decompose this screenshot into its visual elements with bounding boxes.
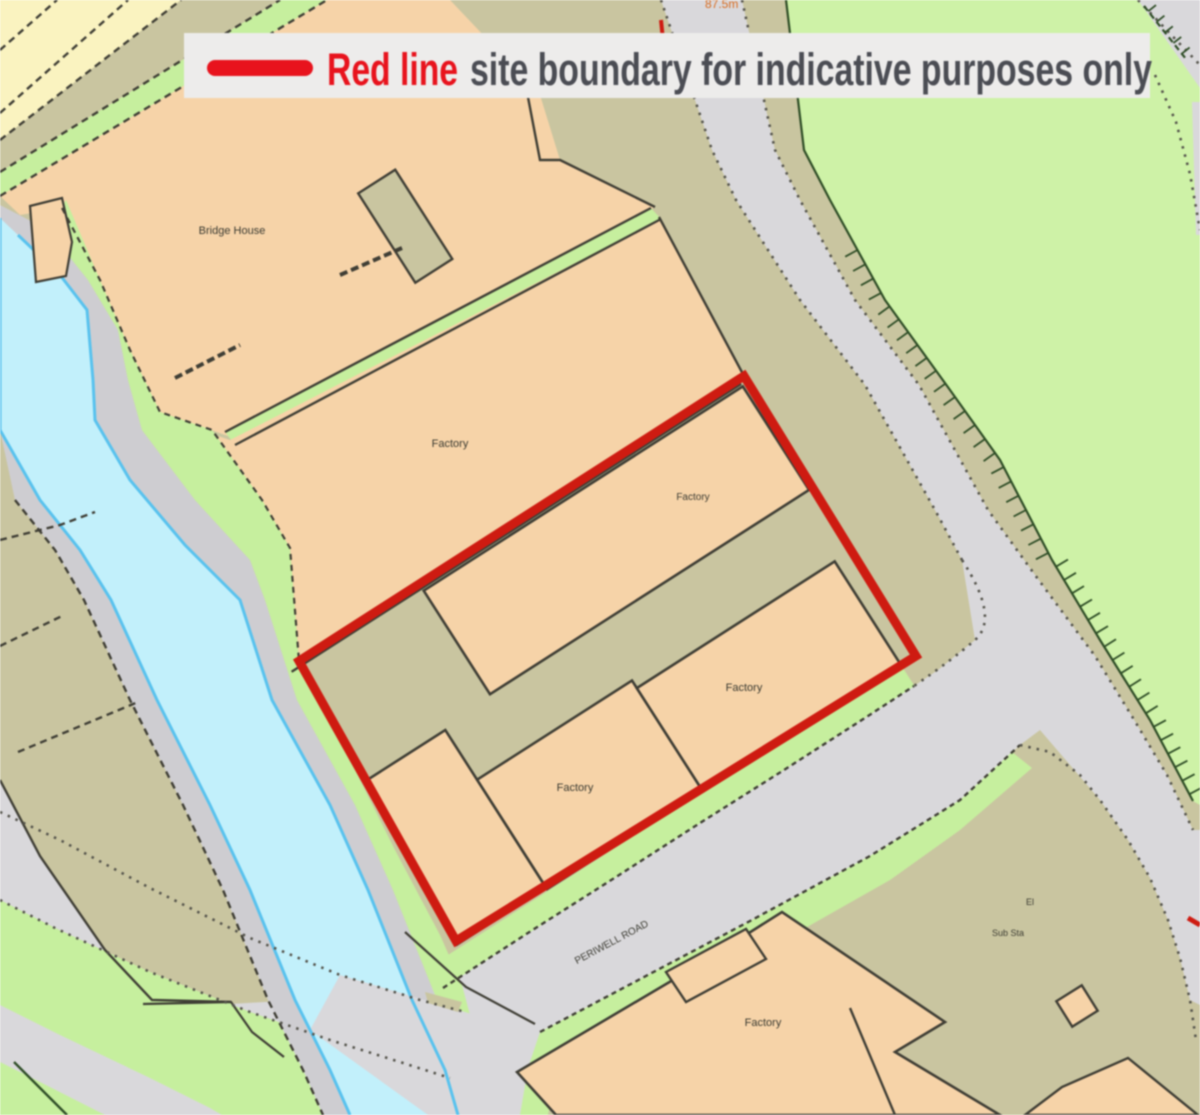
svg-text:site boundary for indicative p: site boundary for indicative purposes on… [470,44,1152,95]
svg-text:Sub Sta: Sub Sta [992,928,1024,938]
svg-text:El: El [1026,897,1034,907]
svg-text:Factory: Factory [726,682,763,694]
svg-text:Bridge House: Bridge House [199,225,266,237]
svg-text:Factory: Factory [557,782,594,794]
svg-text:Red line: Red line [327,44,458,95]
svg-text:Factory: Factory [745,1017,782,1029]
svg-text:Factory: Factory [676,492,709,503]
svg-text:87.5m: 87.5m [705,0,738,11]
svg-text:Factory: Factory [432,438,469,450]
